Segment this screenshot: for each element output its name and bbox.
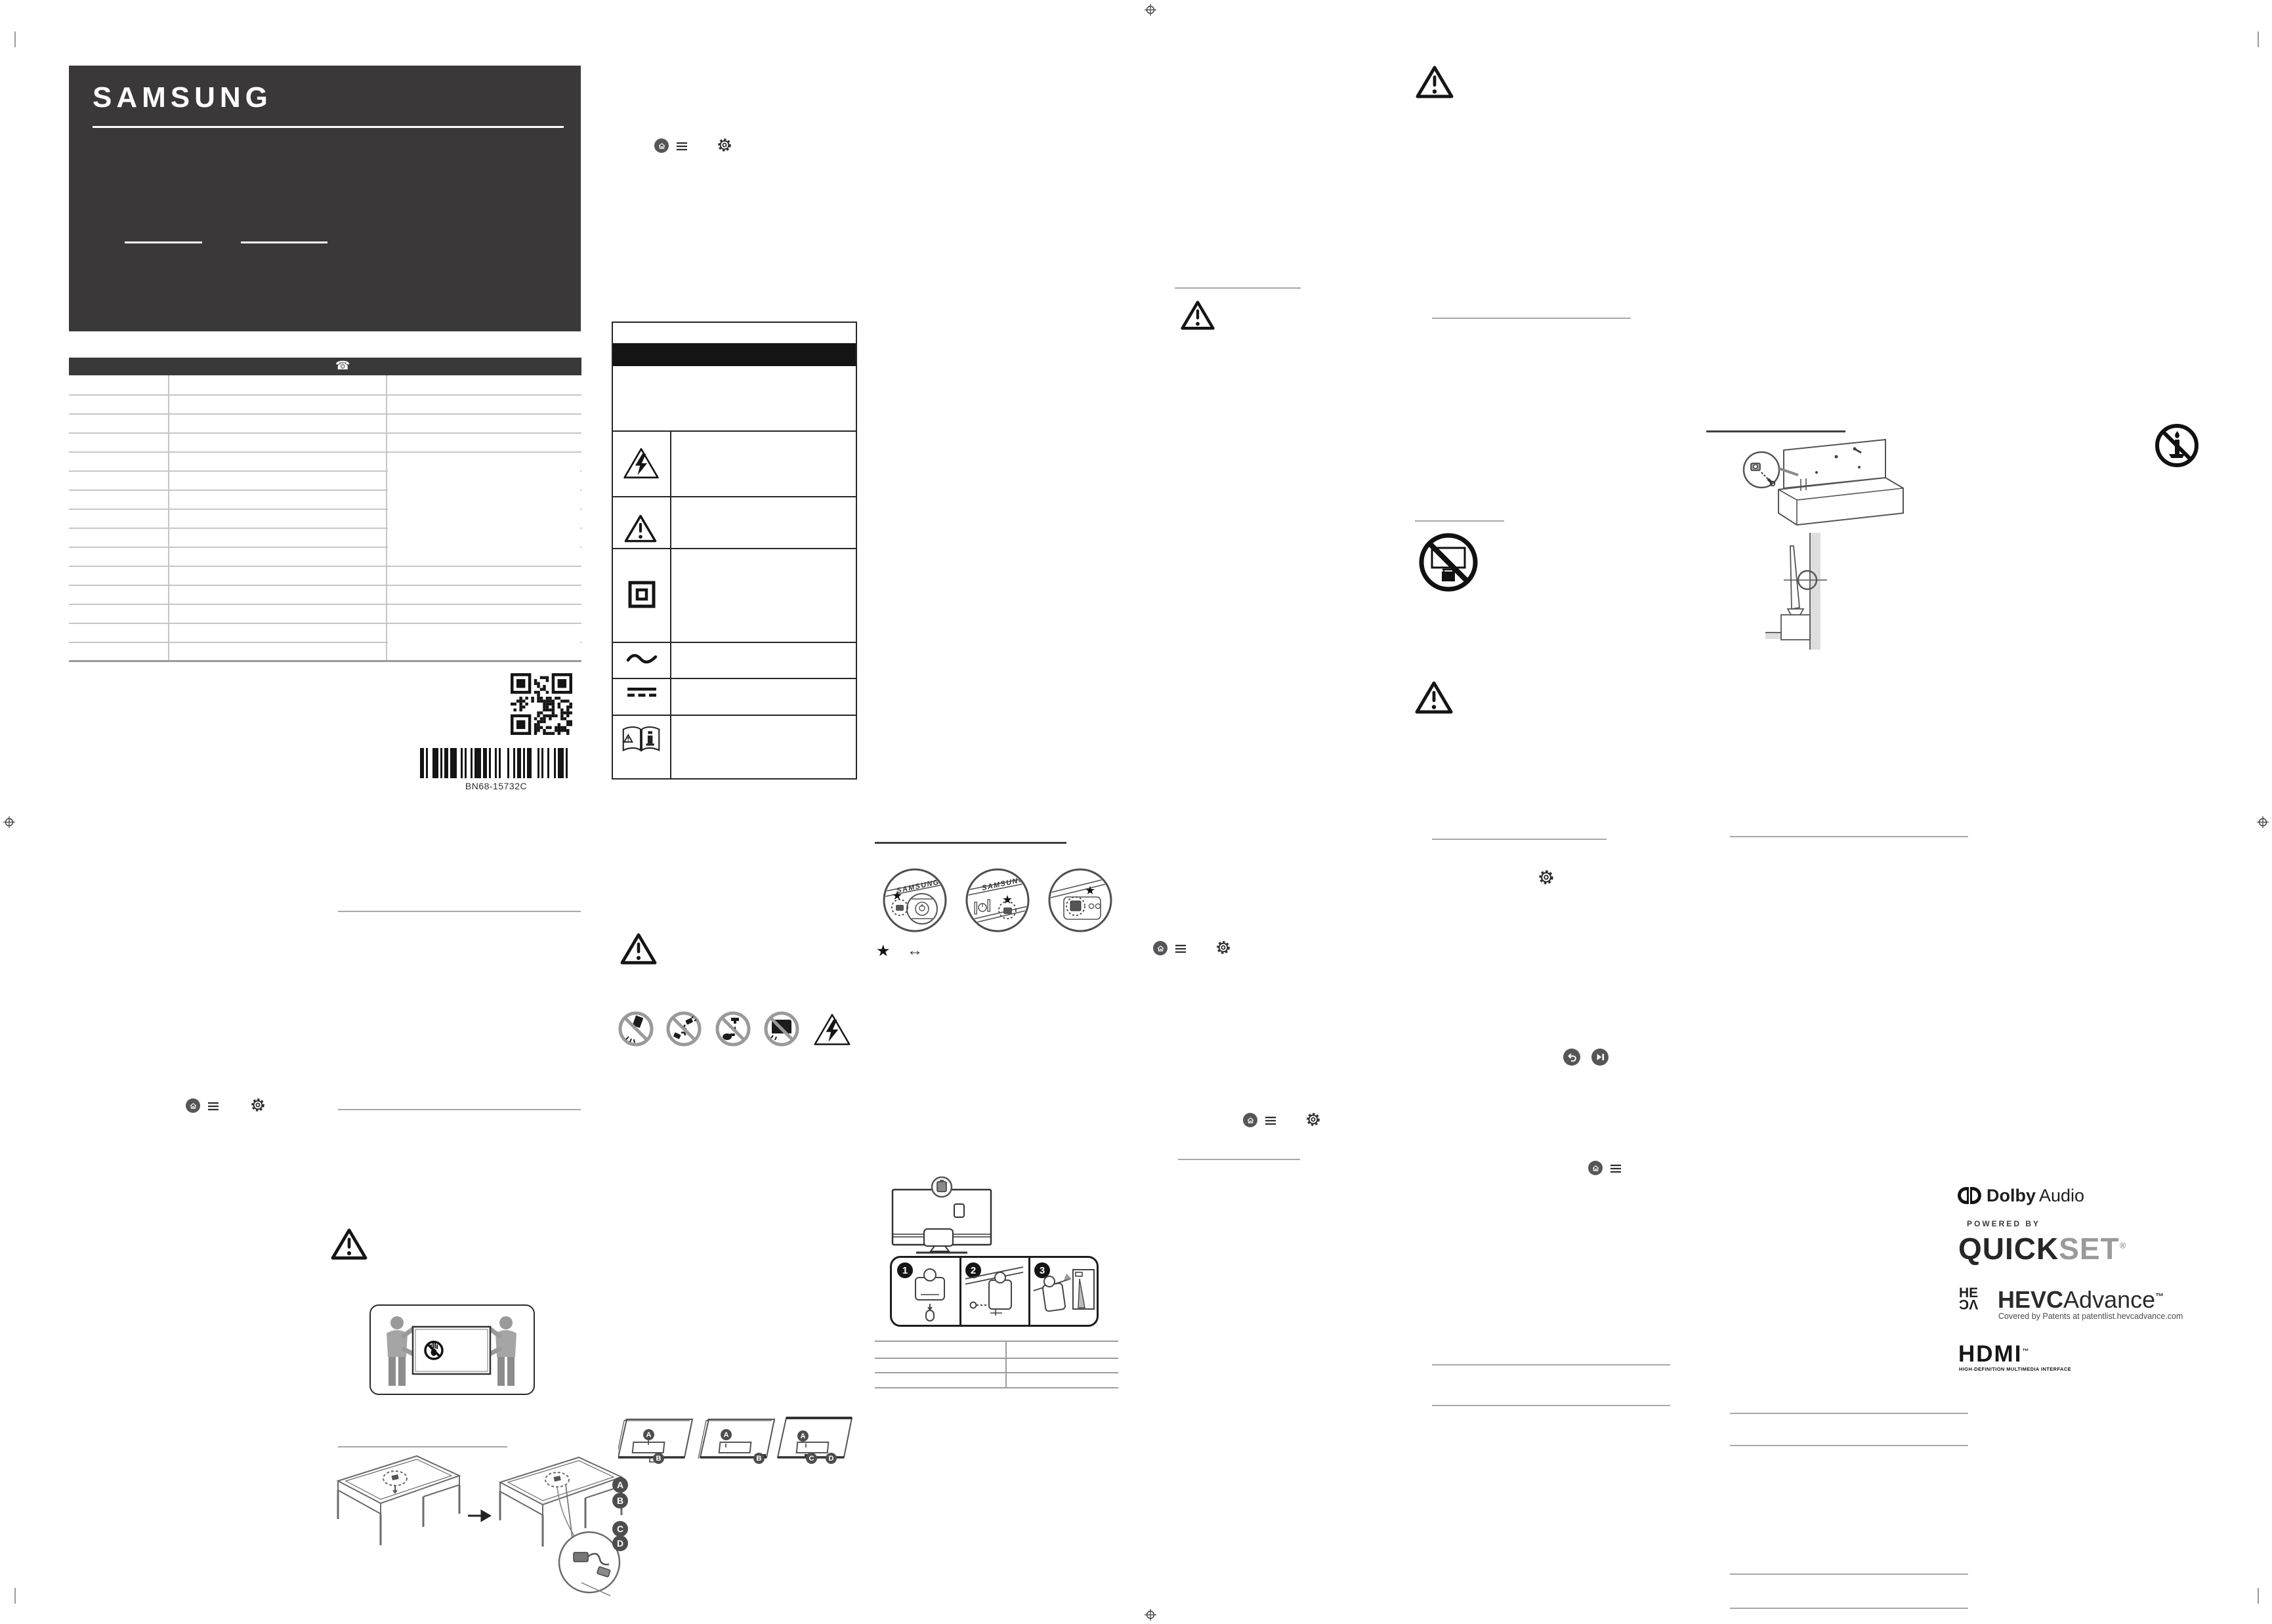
hdmi-caption: HIGH-DEFINITION MULTIMEDIA INTERFACE [1959, 1366, 2071, 1372]
legend-b-badge: B [612, 1493, 628, 1509]
no-touch-screen-icon [425, 1342, 442, 1359]
svg-text:★: ★ [892, 889, 902, 902]
controller-callout-3: ★ [1047, 867, 1114, 934]
warning-triangle-icon [623, 513, 658, 544]
trim-mark [2258, 31, 2259, 47]
assembly-steps-box: 1 2 3 [890, 1256, 1099, 1327]
registered-mark: ® [2120, 1241, 2127, 1251]
merged-cell [388, 633, 580, 659]
phone-icon: ☎ [335, 359, 350, 373]
anti-tip-illustration [1738, 436, 1910, 534]
high-voltage-icon [812, 1012, 852, 1047]
trademark: ™ [2022, 1348, 2030, 1355]
trim-mark [14, 31, 16, 47]
safety-table-black-bar [613, 343, 856, 366]
trademark: ™ [2155, 1291, 2164, 1301]
home-icon [1243, 1113, 1257, 1127]
section-rule [1730, 1573, 1968, 1575]
section-rule [1432, 1405, 1670, 1406]
settings-icon [250, 1097, 266, 1113]
section-rule [875, 842, 1066, 844]
registration-mark [1145, 1609, 1156, 1621]
serial-blank-line [241, 241, 327, 243]
section-rule [1730, 1413, 1968, 1414]
ac-voltage-icon [626, 652, 658, 665]
home-icon [1588, 1161, 1603, 1175]
section-rule [338, 1109, 581, 1110]
warning-triangle-icon [1180, 299, 1215, 331]
barcode [420, 748, 572, 778]
legend-c-badge: C [612, 1521, 628, 1537]
section-rule [338, 911, 581, 912]
no-drop-icon [618, 1010, 654, 1047]
table-column-divider [386, 375, 387, 661]
registration-mark [2257, 816, 2269, 828]
legend-a-badge: A [612, 1477, 628, 1493]
section-rule [1415, 520, 1504, 522]
no-tv-tip-icon [1418, 531, 1479, 593]
menu-icon [207, 1101, 220, 1112]
table-column-divider [168, 375, 169, 661]
spec-table [875, 1339, 1118, 1390]
carry-tv-illustration [369, 1304, 535, 1395]
tv-ports-illustration [618, 1413, 862, 1486]
quickset-logo: QUICKSET® [1958, 1231, 2126, 1266]
svg-text:★: ★ [1085, 884, 1095, 897]
settings-icon [1305, 1112, 1321, 1127]
port-d-badge: D [826, 1453, 837, 1464]
merged-cell [388, 464, 580, 557]
tv-back-illustration [889, 1176, 996, 1257]
port-a-badge: A [797, 1430, 809, 1442]
contact-table: ☎ [69, 358, 581, 662]
port-b-badge: B [753, 1453, 765, 1464]
port-b-badge: B [653, 1453, 664, 1464]
warning-triangle-icon [330, 1227, 368, 1261]
section-rule [1730, 1445, 1968, 1446]
brand-panel: SAMSUNG [69, 66, 581, 331]
no-touch-cables-icon [665, 1010, 702, 1047]
instructions-icon [621, 724, 662, 755]
controller-callout-2: SAMSUNG ★ [964, 867, 1031, 934]
menu-icon [1264, 1115, 1277, 1126]
warning-triangle-icon [620, 932, 658, 966]
step-3-art [1032, 1264, 1095, 1323]
qr-code [511, 673, 572, 735]
play-pause-icon [1591, 1049, 1609, 1066]
trim-mark [2258, 1588, 2259, 1604]
hevc-caption: Covered by Patents at patentlist.hevcadv… [1998, 1312, 2183, 1321]
section-rule [1432, 1364, 1670, 1365]
menu-icon [675, 141, 688, 152]
high-voltage-icon [622, 446, 660, 480]
section-rule [1432, 318, 1631, 319]
section-rule [1175, 287, 1301, 289]
dolby-audio-logo: Dolby Audio [1958, 1185, 2128, 1207]
no-liquids-icon [715, 1010, 751, 1047]
home-icon [654, 138, 669, 153]
class-ii-icon [627, 580, 656, 609]
back-icon [1563, 1049, 1580, 1066]
no-cover-icon [763, 1010, 800, 1047]
powered-by-label: POWERED BY [1967, 1219, 2040, 1228]
menu-icon [1609, 1163, 1622, 1174]
trim-mark [14, 1588, 16, 1604]
settings-icon [1215, 940, 1231, 955]
svg-text:★: ★ [1002, 893, 1013, 906]
hdmi-logo: HDMI™ [1958, 1341, 2030, 1367]
part-number: BN68-15732C [420, 781, 572, 791]
arrows-icon: ↔ [907, 942, 923, 960]
port-a-badge: A [721, 1429, 732, 1440]
panel-rule [93, 126, 564, 128]
registration-mark [1145, 4, 1156, 16]
section-rule [1178, 1159, 1300, 1160]
dc-voltage-icon [626, 686, 658, 698]
home-icon [186, 1098, 200, 1113]
manual-sheet: SAMSUNG ☎ BN68-15732C [0, 0, 2272, 1624]
port-a-badge: A [643, 1429, 654, 1440]
table-placement-illustration [328, 1442, 627, 1610]
registration-mark [3, 816, 15, 828]
home-icon [1153, 941, 1168, 955]
star-icon: ★ [876, 942, 891, 961]
settings-icon [717, 137, 732, 153]
port-c-badge: C [806, 1453, 817, 1464]
warning-triangle-icon [1415, 64, 1454, 100]
no-candles-icon [2154, 423, 2200, 468]
settings-icon [1538, 869, 1555, 886]
wall-tether-illustration [1761, 529, 1855, 655]
table-bottom-rule [69, 660, 581, 662]
section-rule [1730, 1608, 1968, 1609]
menu-icon [1174, 944, 1187, 954]
section-rule [1706, 430, 1845, 432]
model-blank-line [125, 241, 202, 243]
safety-symbols-table [612, 322, 857, 780]
step-2-art [963, 1264, 1026, 1323]
hevc-advance-logo: HEVCAdvance™ [1998, 1286, 2164, 1314]
contact-table-header: ☎ [69, 358, 581, 375]
samsung-logo: SAMSUNG [93, 81, 272, 114]
section-rule [1432, 839, 1607, 840]
warning-triangle-icon [1414, 680, 1454, 715]
controller-callout-1: SAMSUNG ★ [881, 867, 948, 934]
step-1-art [901, 1267, 957, 1323]
section-rule [1730, 836, 1968, 837]
hevc-stack-icon: HE VC [1959, 1287, 1978, 1310]
legend-d-badge: D [612, 1535, 628, 1551]
